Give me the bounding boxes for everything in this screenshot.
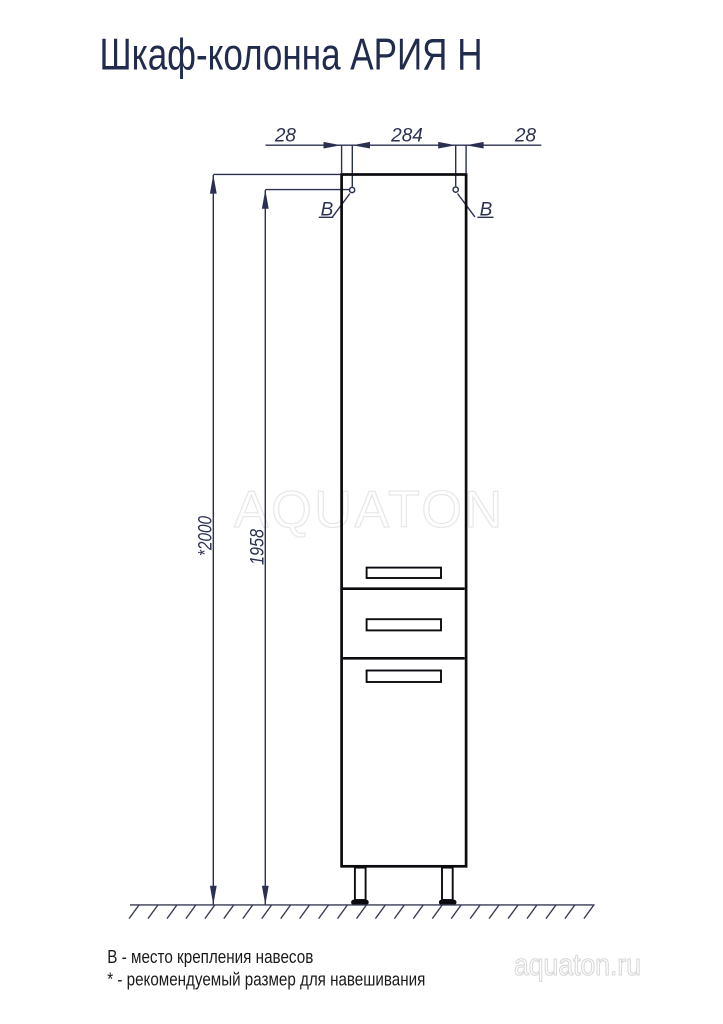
svg-text:В: В <box>480 200 493 221</box>
svg-text:В - место крепления навесов: В - место крепления навесов <box>107 947 313 967</box>
svg-text:28: 28 <box>514 126 537 147</box>
svg-text:*2000: *2000 <box>196 516 217 556</box>
svg-text:AQUATON: AQUATON <box>234 481 502 539</box>
svg-text:В: В <box>321 200 334 221</box>
svg-text:1958: 1958 <box>248 529 269 565</box>
svg-text:284: 284 <box>390 126 423 147</box>
svg-text:aquaton.ru: aquaton.ru <box>514 947 641 982</box>
svg-text:* - рекомендуемый размер для н: * - рекомендуемый размер для навешивания <box>107 970 425 990</box>
svg-text:Шкаф-колонна АРИЯ Н: Шкаф-колонна АРИЯ Н <box>100 31 483 80</box>
svg-text:28: 28 <box>274 126 297 147</box>
